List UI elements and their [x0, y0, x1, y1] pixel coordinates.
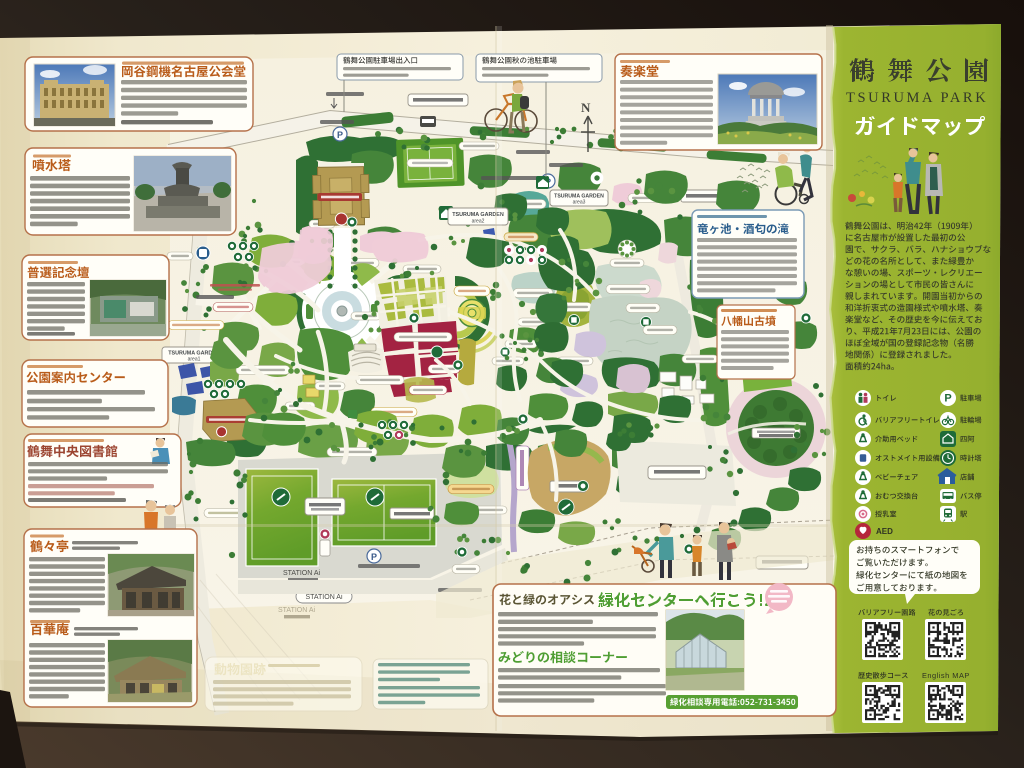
svg-text:TSURUMA PARK: TSURUMA PARK	[846, 90, 988, 106]
svg-text:P: P	[371, 552, 377, 562]
svg-text:area1: area1	[188, 357, 201, 363]
svg-text:P: P	[944, 393, 951, 405]
svg-text:area2: area2	[472, 219, 485, 225]
svg-text:AED: AED	[876, 527, 893, 536]
svg-text:English MAP: English MAP	[922, 671, 970, 680]
svg-text:area3: area3	[573, 200, 586, 206]
svg-text:STATION Ai: STATION Ai	[283, 570, 321, 577]
svg-text:STATION Ai: STATION Ai	[305, 594, 343, 601]
svg-text:P: P	[337, 130, 343, 140]
svg-text:N: N	[581, 100, 591, 115]
svg-text:STATION Ai: STATION Ai	[278, 607, 316, 614]
